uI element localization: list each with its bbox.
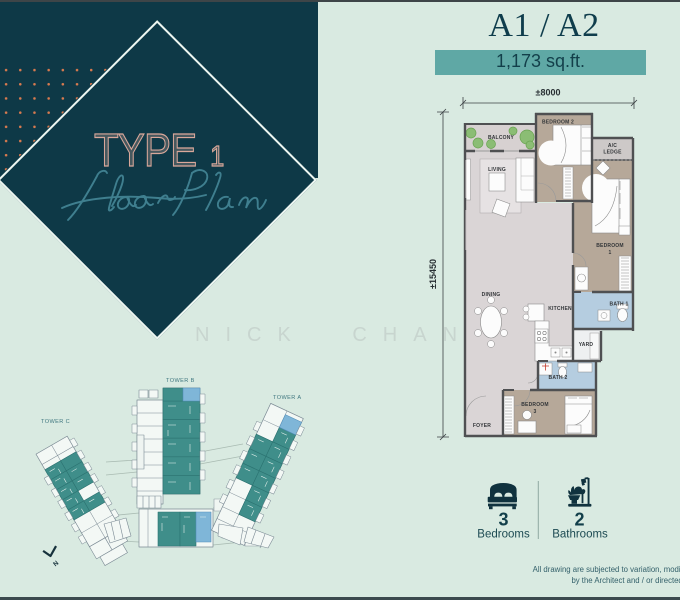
svg-text:N: N [52,560,60,569]
svg-text:BEDROOM: BEDROOM [596,243,624,249]
svg-text:Bathrooms: Bathrooms [552,529,608,541]
svg-text:1: 1 [609,250,612,256]
svg-text:TOWER B: TOWER B [166,378,195,384]
svg-text:TOWER A: TOWER A [273,395,302,401]
svg-text:A/C: A/C [608,143,617,149]
svg-text:BATH 1: BATH 1 [610,302,629,308]
svg-text:BATH 2: BATH 2 [549,375,568,381]
svg-text:BEDROOM 2: BEDROOM 2 [542,120,574,126]
svg-text:BALCONY: BALCONY [488,135,515,141]
svg-text:KITCHEN: KITCHEN [548,306,572,312]
svg-text:LIVING: LIVING [488,167,506,173]
svg-text:2: 2 [574,510,584,530]
svg-text:3: 3 [498,510,508,530]
svg-text:±15450: ±15450 [428,259,438,289]
svg-text:BEDROOM: BEDROOM [521,402,549,408]
svg-text:TOWER C: TOWER C [41,419,70,425]
svg-text:3: 3 [534,409,537,415]
svg-text:±8000: ±8000 [536,88,561,98]
svg-text:Bedrooms: Bedrooms [477,529,530,541]
svg-text:DINING: DINING [482,292,501,298]
svg-text:YARD: YARD [579,342,594,348]
svg-text:FOYER: FOYER [473,423,491,429]
svg-text:LEDGE: LEDGE [603,150,622,156]
